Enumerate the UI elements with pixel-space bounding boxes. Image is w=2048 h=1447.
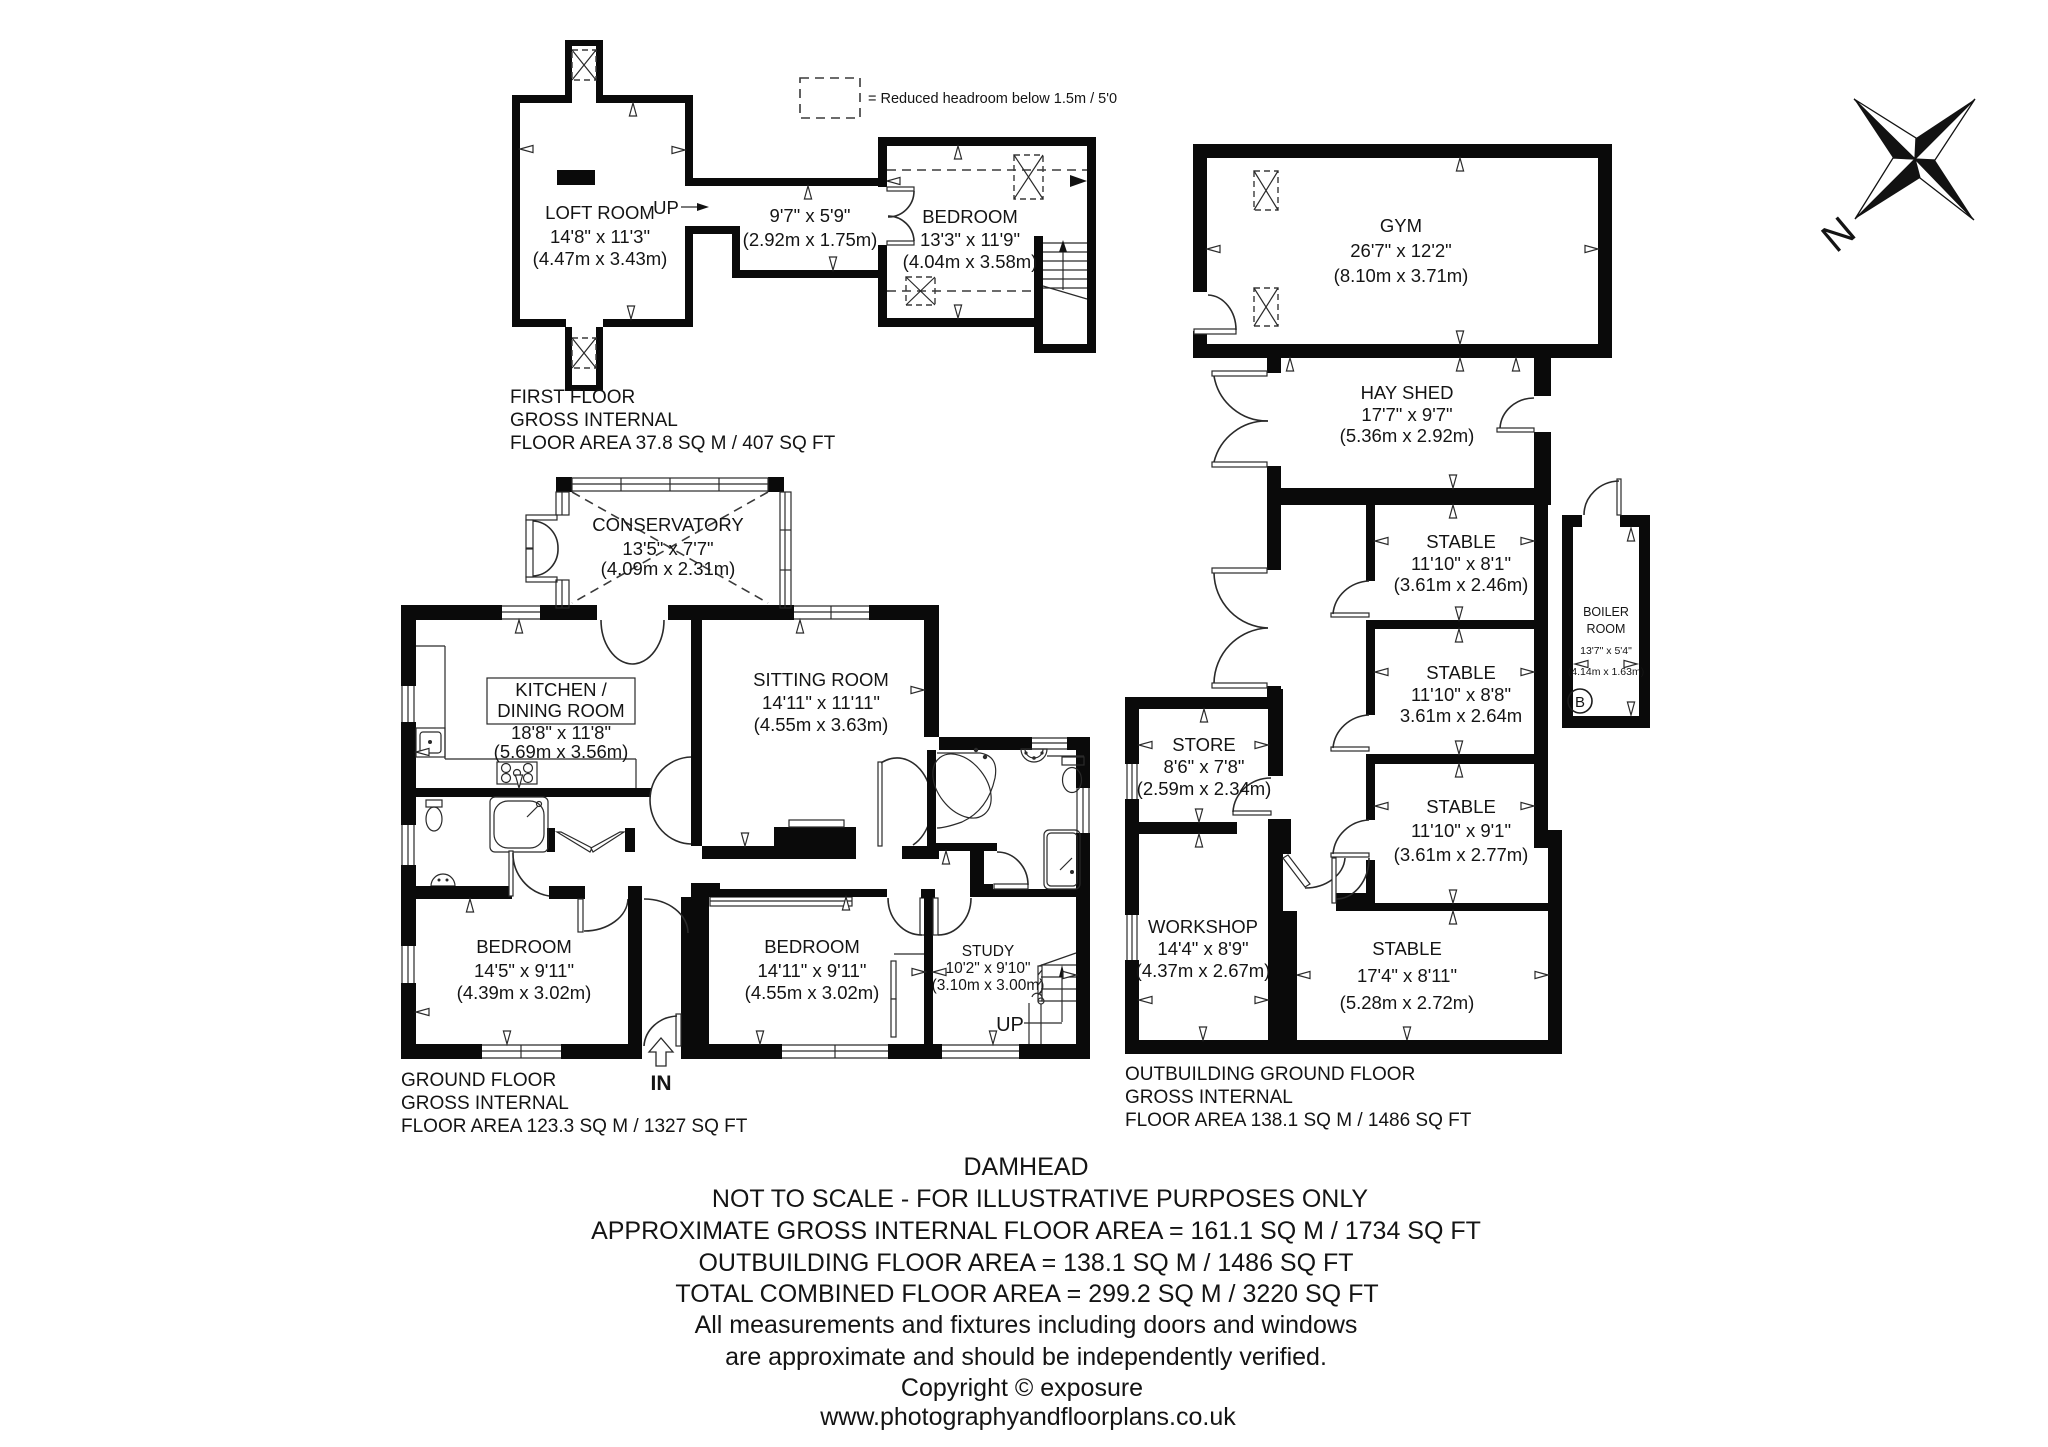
svg-text:All measurements and fixtures: All measurements and fixtures including … (695, 1311, 1358, 1339)
svg-text:14'4" x 8'9": 14'4" x 8'9" (1157, 938, 1248, 959)
svg-text:STUDY: STUDY (962, 943, 1015, 960)
svg-text:11'10" x 9'1": 11'10" x 9'1" (1411, 820, 1511, 841)
svg-text:SITTING ROOM: SITTING ROOM (753, 669, 889, 690)
svg-text:OUTBUILDING FLOOR AREA = 138.1: OUTBUILDING FLOOR AREA = 138.1 SQ M / 14… (698, 1249, 1353, 1277)
svg-text:8'6" x 7'8": 8'6" x 7'8" (1164, 756, 1245, 777)
svg-text:DAMHEAD: DAMHEAD (963, 1153, 1088, 1181)
svg-text:9'7" x 5'9": 9'7" x 5'9" (770, 205, 851, 226)
svg-text:GROSS INTERNAL: GROSS INTERNAL (401, 1093, 569, 1114)
svg-text:APPROXIMATE GROSS INTERNAL FLO: APPROXIMATE GROSS INTERNAL FLOOR AREA = … (591, 1217, 1481, 1245)
svg-text:3.61m x 2.64m: 3.61m x 2.64m (1400, 705, 1522, 726)
svg-text:(4.39m x 3.02m): (4.39m x 3.02m) (457, 982, 592, 1003)
svg-text:BEDROOM: BEDROOM (922, 206, 1018, 227)
svg-text:UP: UP (653, 197, 679, 218)
svg-text:(4.55m x 3.02m): (4.55m x 3.02m) (745, 982, 880, 1003)
svg-text:HAY SHED: HAY SHED (1361, 382, 1454, 403)
svg-text:= Reduced headroom below 1.5m: = Reduced headroom below 1.5m / 5'0 (868, 91, 1117, 107)
svg-text:GYM: GYM (1380, 215, 1422, 236)
svg-text:FLOOR AREA 138.1 SQ M / 1486 S: FLOOR AREA 138.1 SQ M / 1486 SQ FT (1125, 1110, 1472, 1131)
svg-text:NOT TO SCALE - FOR ILLUSTRATIV: NOT TO SCALE - FOR ILLUSTRATIVE PURPOSES… (712, 1185, 1369, 1213)
svg-text:26'7" x 12'2": 26'7" x 12'2" (1350, 240, 1451, 261)
svg-text:STORE: STORE (1172, 734, 1235, 755)
svg-text:Copyright © exposure: Copyright © exposure (901, 1374, 1143, 1402)
svg-text:17'7" x 9'7": 17'7" x 9'7" (1361, 404, 1452, 425)
svg-text:are approximate and should be: are approximate and should be independen… (725, 1343, 1327, 1371)
svg-text:(4.47m x 3.43m): (4.47m x 3.43m) (533, 248, 668, 269)
svg-text:18'8" x 11'8": 18'8" x 11'8" (511, 722, 611, 743)
svg-text:STABLE: STABLE (1426, 531, 1496, 552)
svg-text:(3.61m x 2.77m): (3.61m x 2.77m) (1394, 844, 1529, 865)
svg-text:(3.10m x 3.00m): (3.10m x 3.00m) (932, 977, 1045, 994)
svg-text:GROUND FLOOR: GROUND FLOOR (401, 1070, 556, 1091)
svg-text:14'11" x 11'11": 14'11" x 11'11" (762, 692, 880, 713)
svg-text:13'7" x 5'4": 13'7" x 5'4" (1580, 645, 1632, 657)
svg-text:14'11" x 9'11": 14'11" x 9'11" (757, 960, 866, 981)
svg-text:13'3" x 11'9": 13'3" x 11'9" (920, 229, 1020, 250)
svg-text:IN: IN (651, 1072, 672, 1095)
svg-text:(4.04m x 3.58m): (4.04m x 3.58m) (903, 251, 1038, 272)
svg-text:(2.59m x 2.34m): (2.59m x 2.34m) (1137, 778, 1272, 799)
svg-text:(5.69m x 3.56m): (5.69m x 3.56m) (494, 741, 629, 762)
svg-text:B: B (1575, 694, 1585, 711)
svg-text:(4.55m x 3.63m): (4.55m x 3.63m) (754, 714, 889, 735)
svg-text:11'10" x 8'8": 11'10" x 8'8" (1411, 684, 1511, 705)
svg-text:(2.92m x 1.75m): (2.92m x 1.75m) (743, 229, 878, 250)
svg-text:UP: UP (996, 1014, 1024, 1036)
svg-text:(4.09m x 2.31m): (4.09m x 2.31m) (601, 558, 736, 579)
svg-text:www.photographyandfloorplans.c: www.photographyandfloorplans.co.uk (819, 1403, 1236, 1431)
svg-text:BEDROOM: BEDROOM (764, 936, 860, 957)
svg-text:KITCHEN /: KITCHEN / (515, 679, 607, 700)
svg-text:FIRST FLOOR: FIRST FLOOR (510, 387, 635, 408)
svg-text:FLOOR AREA 37.8 SQ M / 407 SQ: FLOOR AREA 37.8 SQ M / 407 SQ FT (510, 433, 836, 454)
svg-text:DINING ROOM: DINING ROOM (497, 700, 624, 721)
svg-text:TOTAL COMBINED FLOOR AREA = 29: TOTAL COMBINED FLOOR AREA = 299.2 SQ M /… (675, 1280, 1378, 1308)
svg-text:(4.14m x 1.63m): (4.14m x 1.63m) (1568, 666, 1644, 678)
svg-text:(4.37m x 2.67m): (4.37m x 2.67m) (1136, 960, 1271, 981)
svg-text:14'8" x 11'3": 14'8" x 11'3" (550, 226, 650, 247)
svg-text:14'5" x 9'11": 14'5" x 9'11" (474, 960, 574, 981)
svg-text:BEDROOM: BEDROOM (476, 936, 572, 957)
svg-text:GROSS INTERNAL: GROSS INTERNAL (510, 410, 678, 431)
svg-text:WORKSHOP: WORKSHOP (1148, 916, 1258, 937)
svg-text:GROSS INTERNAL: GROSS INTERNAL (1125, 1087, 1293, 1108)
svg-text:STABLE: STABLE (1372, 938, 1442, 959)
svg-text:LOFT ROOM: LOFT ROOM (545, 202, 655, 223)
svg-text:11'10" x 8'1": 11'10" x 8'1" (1411, 553, 1511, 574)
svg-text:ROOM: ROOM (1587, 622, 1626, 636)
svg-text:BOILER: BOILER (1583, 605, 1629, 619)
svg-text:OUTBUILDING GROUND FLOOR: OUTBUILDING GROUND FLOOR (1125, 1064, 1415, 1085)
svg-text:(5.36m x 2.92m): (5.36m x 2.92m) (1340, 425, 1475, 446)
svg-text:(8.10m x 3.71m): (8.10m x 3.71m) (1334, 265, 1469, 286)
svg-text:STABLE: STABLE (1426, 662, 1496, 683)
svg-text:STABLE: STABLE (1426, 796, 1496, 817)
svg-text:13'5" x 7'7": 13'5" x 7'7" (622, 538, 713, 559)
svg-text:(5.28m x 2.72m): (5.28m x 2.72m) (1340, 992, 1475, 1013)
svg-text:CONSERVATORY: CONSERVATORY (592, 514, 743, 535)
svg-text:FLOOR AREA 123.3 SQ M / 1327 S: FLOOR AREA 123.3 SQ M / 1327 SQ FT (401, 1116, 748, 1137)
svg-text:10'2" x 9'10": 10'2" x 9'10" (945, 960, 1030, 977)
svg-text:(3.61m x 2.46m): (3.61m x 2.46m) (1394, 574, 1529, 595)
svg-text:17'4" x 8'11": 17'4" x 8'11" (1357, 965, 1457, 986)
